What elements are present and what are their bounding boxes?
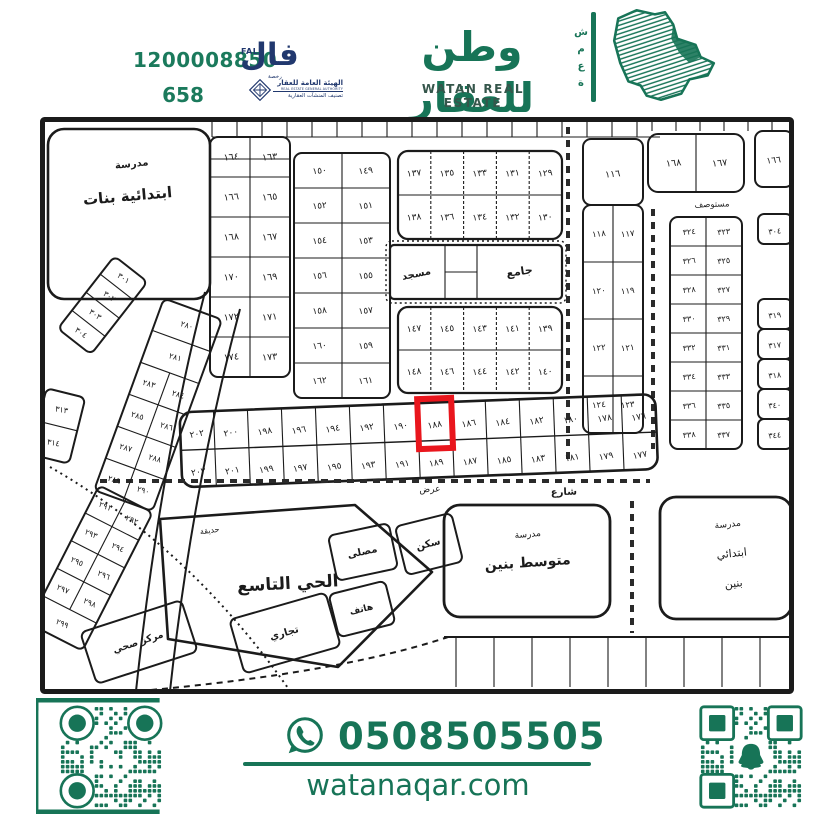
svg-text:٢٨٨: ٢٨٨ [147, 452, 163, 464]
svg-text:١١٩: ١١٩ [620, 286, 635, 297]
svg-text:١٣٠: ١٣٠ [538, 212, 553, 223]
svg-text:١١٧: ١١٧ [620, 229, 635, 240]
svg-text:١٨٥: ١٨٥ [496, 455, 512, 467]
whatsapp-contact: 0508505505 [282, 708, 602, 764]
svg-text:١٩١: ١٩١ [394, 459, 410, 471]
block-ninth-district: حديقةالحي التاسع [160, 505, 432, 667]
saudi-arabia-logo-icon [602, 4, 724, 106]
block-middle-school: مدرسةمتوسط بنين [444, 505, 610, 617]
svg-text:٣٣٦: ٣٣٦ [682, 401, 696, 411]
svg-text:١٦٣: ١٦٣ [262, 151, 278, 164]
authority-tagline: تصنيف المنشآت العقارية [273, 91, 343, 100]
svg-text:٢٨١: ٢٨١ [168, 351, 183, 363]
svg-text:١٧٦: ١٧٦ [631, 411, 647, 423]
brand-divider-bar [591, 12, 596, 102]
svg-text:١٥٩: ١٥٩ [358, 341, 374, 352]
block-plots-323-338: ٣٢٤٣٢٣٣٢٦٣٢٥٣٢٨٣٢٧٣٣٠٣٢٩٣٣٢٣٣١٣٣٤٣٣٣٣٣٦٣… [670, 217, 742, 449]
block-plots-313-314: ٣١٣٣١٤ [40, 388, 85, 464]
svg-text:١٣٥: ١٣٥ [439, 168, 455, 179]
svg-text:١٩٧: ١٩٧ [292, 463, 308, 475]
svg-text:١٥٠: ١٥٠ [312, 166, 327, 177]
svg-text:١٦٦: ١٦٦ [223, 191, 239, 204]
brand-name-english: WATAN REAL ESTATE [398, 82, 548, 110]
whatsapp-number[interactable]: 0508505505 [338, 715, 605, 758]
svg-text:٣٢٥: ٣٢٥ [717, 256, 731, 266]
svg-text:٣١٩: ٣١٩ [768, 310, 782, 320]
svg-text:٢٨٧: ٢٨٧ [118, 442, 134, 454]
svg-text:١٥٣: ١٥٣ [358, 236, 374, 247]
svg-text:١٢٠: ١٢٠ [592, 286, 607, 297]
block-plots-149-162: ١٥٠١٤٩١٥٢١٥١١٥٤١٥٣١٥٦١٥٥١٥٨١٥٧١٦٠١٥٩١٦٢١… [294, 153, 390, 398]
svg-text:١٨٣: ١٨٣ [530, 453, 546, 465]
svg-text:١٨١: ١٨١ [564, 452, 580, 464]
svg-text:١٦٩: ١٦٩ [262, 271, 278, 284]
svg-text:١٩٩: ١٩٩ [258, 464, 274, 476]
svg-text:٢٩٧: ٢٩٧ [55, 583, 71, 597]
block-mosque: مسجدجامع [386, 241, 566, 303]
svg-text:٢٠١: ٢٠١ [224, 465, 240, 477]
svg-text:٣٣٠: ٣٣٠ [682, 314, 696, 324]
svg-text:٢٨٤: ٢٨٤ [171, 388, 186, 400]
footer-divider [243, 762, 591, 766]
svg-text:١٤٨: ١٤٨ [406, 367, 422, 378]
block-plots-301-304: ٣٠١٣٠٢٣٠٣٣٠٤ [58, 256, 148, 354]
svg-text:٣٣٣: ٣٣٣ [717, 372, 731, 382]
svg-text:١٤٦: ١٤٦ [439, 367, 455, 378]
svg-text:١٥٤: ١٥٤ [312, 236, 328, 247]
fal-phone-number: 1200008850 [133, 48, 238, 72]
svg-text:ابتدائية بنات: ابتدائية بنات [82, 183, 172, 209]
svg-text:١٨٠: ١٨٠ [563, 414, 579, 426]
svg-text:٣٠٣: ٣٠٣ [87, 307, 103, 322]
svg-text:١٩٥: ١٩٥ [326, 461, 342, 473]
plot-pair-column: ١١٨١١٧١٢٠١١٩١٢٢١٢١١٢٤١٢٣ [583, 205, 643, 433]
svg-text:١٩٢: ١٩٢ [359, 422, 375, 434]
fal-logo-en: FAL [241, 47, 258, 56]
svg-text:٢٨٦: ٢٨٦ [159, 420, 174, 432]
svg-text:١٦٢: ١٦٢ [312, 376, 328, 387]
svg-text:١٨٢: ١٨٢ [529, 415, 545, 427]
svg-text:١٧٠: ١٧٠ [223, 271, 239, 284]
svg-text:١٧٨: ١٧٨ [597, 413, 613, 425]
svg-text:١٣٣: ١٣٣ [472, 168, 488, 179]
block-plots-291-299: ٢٩١٢٩٢٢٩٣٢٩٤٢٩٥٢٩٦٢٩٧٢٩٨٢٩٩ [40, 485, 153, 650]
svg-text:مركز صحي: مركز صحي [112, 629, 165, 656]
svg-text:١٥١: ١٥١ [358, 201, 373, 212]
svg-text:٢٠٢: ٢٠٢ [189, 428, 205, 440]
svg-text:١٦١: ١٦١ [358, 376, 373, 387]
svg-text:٢٩٠: ٢٩٠ [136, 484, 151, 496]
svg-text:٣٢٤: ٣٢٤ [682, 227, 696, 237]
whatsapp-icon [282, 713, 328, 759]
svg-text:١٤٥: ١٤٥ [439, 324, 455, 335]
svg-text:١٦٧: ١٦٧ [262, 231, 278, 244]
block-plots-116-124: ١١٦ [583, 139, 643, 205]
real-estate-authority-emblem [248, 78, 272, 102]
svg-text:٣٣١: ٣٣١ [717, 343, 731, 353]
svg-text:١٣٢: ١٣٢ [505, 212, 521, 223]
svg-text:١٤٩: ١٤٩ [358, 166, 374, 177]
block-primary-school: مدرسةابتدائيبنين [660, 497, 792, 619]
block-plots-right-edge: ٣٠٤٣١٩٣١٧٣١٨٣٤٠٣٤٤ [758, 214, 792, 449]
svg-text:١٨٩: ١٨٩ [428, 457, 444, 469]
svg-text:حديقة: حديقة [199, 525, 220, 537]
svg-text:٢٩٢: ٢٩٢ [124, 513, 139, 526]
svg-text:٣٣٤: ٣٣٤ [682, 372, 696, 382]
block-plots-139-148: ١٤٧١٤٥١٤٣١٤١١٣٩١٤٨١٤٦١٤٤١٤٢١٤٠ [398, 307, 562, 393]
svg-text:٣١٤: ٣١٤ [46, 437, 60, 448]
svg-text:٣٢٦: ٣٢٦ [682, 256, 696, 266]
svg-text:٣٠١: ٣٠١ [116, 271, 132, 286]
svg-text:١٦٧: ١٦٧ [712, 157, 728, 170]
svg-text:مستوصف: مستوصف [694, 199, 729, 210]
svg-text:سكن: سكن [415, 536, 442, 553]
svg-text:١٧٩: ١٧٩ [598, 451, 614, 463]
cadastral-plot-map: مدرسةابتدائية بنات١٦٤١٦٣١٦٦١٦٥١٦٨١٦٧١٧٠١… [40, 117, 794, 694]
authority-name: الهيئة العامة للعقار [273, 79, 343, 87]
svg-text:٢٨٠: ٢٨٠ [179, 319, 194, 331]
svg-text:١٣١: ١٣١ [505, 168, 520, 179]
svg-text:١٤٠: ١٤٠ [538, 367, 553, 378]
svg-text:مدرسة: مدرسة [114, 157, 149, 171]
svg-text:٣٣٢: ٣٣٢ [682, 343, 696, 353]
svg-text:ابتدائي: ابتدائي [716, 545, 748, 561]
snapchat-ghost-icon [734, 740, 768, 774]
svg-text:٣٣٨: ٣٣٨ [682, 430, 696, 440]
svg-text:١٥٢: ١٥٢ [312, 201, 328, 212]
svg-text:١٦٥: ١٦٥ [262, 191, 278, 204]
svg-text:١٦٠: ١٦٠ [312, 341, 327, 352]
authority-name-en: REAL ESTATE GENERAL AUTHORITY [273, 87, 343, 91]
svg-text:شارع: شارع [551, 487, 578, 499]
svg-text:٣٢٧: ٣٢٧ [717, 285, 731, 295]
svg-text:٣١٣: ٣١٣ [54, 404, 69, 415]
svg-text:٣٤٤: ٣٤٤ [768, 430, 782, 440]
svg-text:١٤٤: ١٤٤ [472, 367, 488, 378]
svg-text:٣٠٤: ٣٠٤ [73, 325, 89, 340]
svg-text:١٩٣: ١٩٣ [360, 460, 376, 472]
svg-text:١٥٥: ١٥٥ [358, 271, 374, 282]
svg-text:مدرسة: مدرسة [714, 519, 741, 532]
svg-text:١٥٦: ١٥٦ [312, 271, 328, 282]
svg-text:٣٣٥: ٣٣٥ [717, 401, 731, 411]
svg-text:١٩٦: ١٩٦ [291, 425, 307, 437]
svg-text:مسجد: مسجد [401, 266, 432, 283]
block-girls-school: مدرسةابتدائية بنات [48, 129, 210, 299]
block-plots-167-168: ١٦٨١٦٧ [648, 134, 744, 192]
plots-strip-176-203: ١٧٦١٧٨١٨٠١٨٢١٨٤١٨٦١٨٨١٩٠١٩٢١٩٤١٩٦١٩٨٢٠٠٢… [179, 390, 658, 487]
svg-text:١٤٧: ١٤٧ [406, 324, 422, 335]
svg-text:١٦٨: ١٦٨ [665, 157, 681, 170]
svg-text:٢٩٨: ٢٩٨ [82, 596, 98, 610]
svg-text:متوسط بنين: متوسط بنين [484, 552, 571, 574]
svg-text:١٩٨: ١٩٨ [257, 426, 273, 438]
svg-text:١٤٣: ١٤٣ [472, 324, 488, 335]
svg-text:١٨٤: ١٨٤ [495, 417, 511, 429]
svg-text:مصلى: مصلى [347, 544, 379, 561]
svg-text:١٤١: ١٤١ [505, 324, 520, 335]
website-url[interactable]: watanaqar.com [283, 768, 553, 802]
svg-text:٢٩٥: ٢٩٥ [69, 555, 84, 568]
qr-code-website[interactable] [36, 698, 188, 815]
svg-text:٣٢٩: ٣٢٩ [717, 314, 731, 324]
svg-text:٣٤٠: ٣٤٠ [768, 400, 782, 410]
svg-text:١٢١: ١٢١ [620, 343, 635, 354]
svg-text:٣٣٧: ٣٣٧ [717, 430, 731, 440]
map-content: مدرسةابتدائية بنات١٦٤١٦٣١٦٦١٦٥١٦٨١٦٧١٧٠١… [40, 120, 793, 692]
svg-text:٢٠٠: ٢٠٠ [223, 427, 239, 439]
svg-text:٢٩٣: ٢٩٣ [83, 527, 99, 541]
svg-text:الحي التاسع: الحي التاسع [237, 571, 339, 596]
svg-text:٢٨٩: ٢٨٩ [107, 474, 122, 486]
svg-text:٢٩١: ٢٩١ [98, 500, 113, 513]
svg-text:١٣٩: ١٣٩ [538, 324, 554, 335]
svg-text:٢٨٥: ٢٨٥ [130, 410, 145, 422]
svg-text:٢٩٦: ٢٩٦ [96, 569, 111, 582]
svg-text:١٦٨: ١٦٨ [223, 231, 239, 244]
svg-text:هاتف: هاتف [349, 602, 374, 617]
block-سكن: سكن [395, 513, 463, 576]
svg-text:بنين: بنين [724, 576, 743, 591]
block-plot-166: ١٦٦ [755, 131, 793, 187]
authority-text: الهيئة العامة للعقار REAL ESTATE GENERAL… [273, 79, 343, 100]
svg-text:٣٠٤: ٣٠٤ [768, 226, 782, 236]
svg-text:٢٩٩: ٢٩٩ [55, 617, 70, 630]
block-plots-163-174: ١٦٤١٦٣١٦٦١٦٥١٦٨١٦٧١٧٠١٦٩١٧٢١٧١١٧٤١٧٣ [210, 137, 290, 377]
svg-text:١٢٩: ١٢٩ [538, 168, 554, 179]
svg-text:١١٨: ١١٨ [592, 229, 607, 240]
svg-text:مدرسة: مدرسة [514, 529, 541, 541]
svg-text:٢٨٣: ٢٨٣ [142, 378, 158, 390]
svg-text:٣١٨: ٣١٨ [768, 370, 782, 380]
svg-text:١٢٢: ١٢٢ [592, 343, 607, 354]
svg-text:١٤٢: ١٤٢ [505, 367, 521, 378]
svg-text:١٧٧: ١٧٧ [632, 449, 648, 461]
svg-text:عرض: عرض [419, 484, 441, 495]
block-plots-129-138: ١٣٧١٣٥١٣٣١٣١١٢٩١٣٨١٣٦١٣٤١٣٢١٣٠ [398, 151, 562, 239]
svg-text:١٣٧: ١٣٧ [406, 168, 422, 179]
svg-text:١٣٤: ١٣٤ [472, 212, 488, 223]
svg-text:٣٠٢: ٣٠٢ [101, 289, 117, 304]
svg-text:١٣٨: ١٣٨ [406, 212, 422, 223]
svg-text:١٨٦: ١٨٦ [461, 418, 477, 430]
svg-text:١٢٣: ١٢٣ [620, 400, 635, 411]
flyer-page: 1200008850 فال FAL رخصة 658 الهيئة العام… [0, 0, 834, 819]
svg-text:١٢٤: ١٢٤ [592, 400, 607, 411]
svg-text:١٧١: ١٧١ [262, 311, 278, 324]
svg-text:٣٢٣: ٣٢٣ [717, 227, 731, 237]
brand-side-word: شمعة [574, 24, 588, 92]
svg-text:١٧٣: ١٧٣ [262, 351, 278, 364]
svg-text:١١٦: ١١٦ [605, 168, 621, 181]
svg-text:١٥٧: ١٥٧ [358, 306, 374, 317]
svg-text:١٣٦: ١٣٦ [439, 212, 455, 223]
svg-text:١٩٤: ١٩٤ [325, 423, 341, 435]
svg-text:١٨٨: ١٨٨ [427, 419, 443, 431]
svg-text:تجاري: تجاري [269, 624, 301, 643]
svg-text:جامع: جامع [506, 263, 534, 280]
svg-text:١٦٤: ١٦٤ [223, 151, 239, 164]
svg-text:٣٢٨: ٣٢٨ [682, 285, 696, 295]
svg-text:١٩٠: ١٩٠ [393, 421, 409, 433]
qr-code-snapchat[interactable] [676, 698, 828, 815]
svg-text:٢٩٤: ٢٩٤ [110, 541, 125, 554]
svg-text:١٦٦: ١٦٦ [766, 155, 782, 166]
svg-text:١٥٨: ١٥٨ [312, 306, 328, 317]
svg-text:٣١٧: ٣١٧ [768, 340, 782, 350]
svg-text:١٨٧: ١٨٧ [462, 456, 478, 468]
fal-license-number: 658 [158, 83, 208, 107]
